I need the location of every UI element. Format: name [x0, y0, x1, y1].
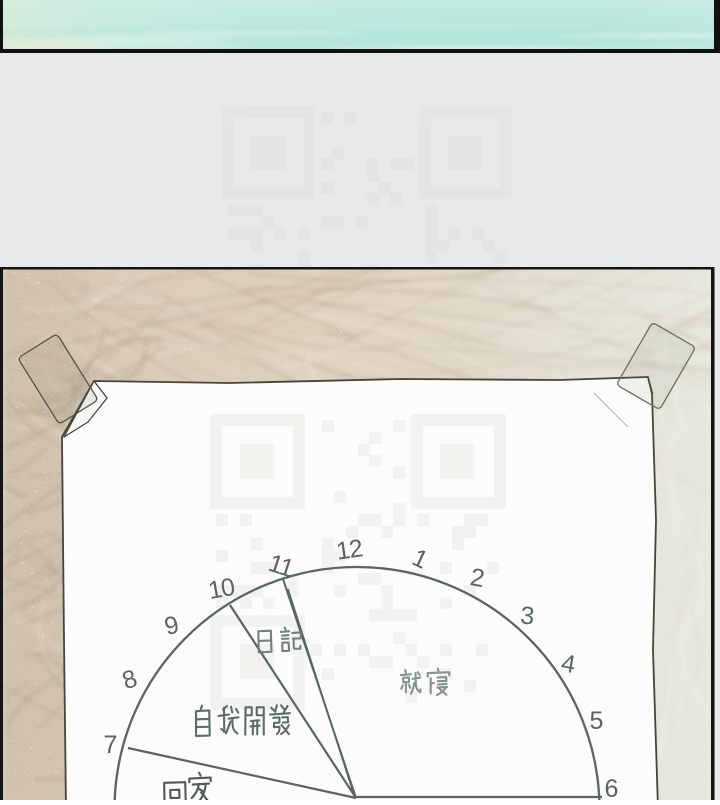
svg-text:12: 12	[334, 534, 364, 565]
svg-text:5: 5	[590, 707, 603, 735]
svg-text:7: 7	[104, 731, 117, 759]
svg-text:3: 3	[519, 601, 534, 630]
svg-text:10: 10	[206, 573, 236, 605]
svg-text:6: 6	[605, 775, 618, 800]
